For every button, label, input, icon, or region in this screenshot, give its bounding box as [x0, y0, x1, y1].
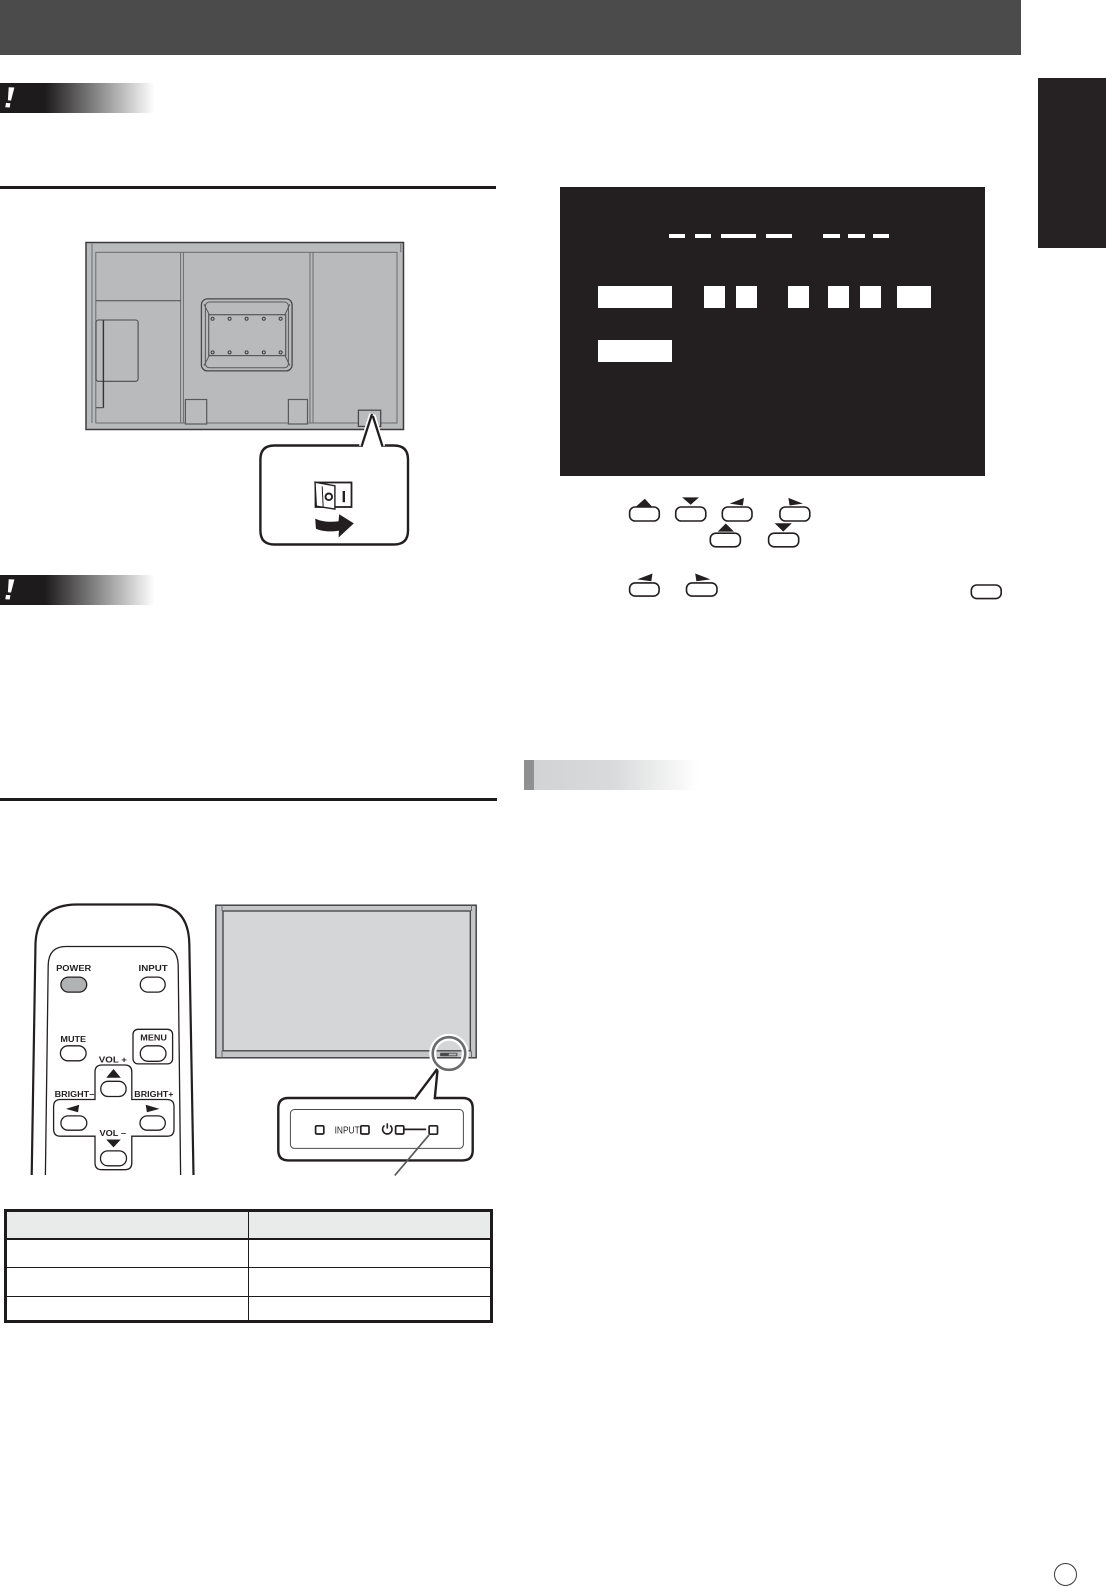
- svg-text:INPUT: INPUT: [335, 1126, 360, 1137]
- svg-text:MENU: MENU: [140, 1034, 167, 1043]
- svg-text:VOL −: VOL −: [100, 1129, 127, 1138]
- svg-text:BRIGHT+: BRIGHT+: [134, 1090, 174, 1099]
- svg-text:POWER: POWER: [56, 964, 91, 973]
- svg-text:MUTE: MUTE: [60, 1035, 86, 1044]
- svg-text:VOL +: VOL +: [99, 1055, 128, 1064]
- svg-text:INPUT: INPUT: [139, 964, 168, 973]
- svg-text:BRIGHT−: BRIGHT−: [55, 1090, 95, 1099]
